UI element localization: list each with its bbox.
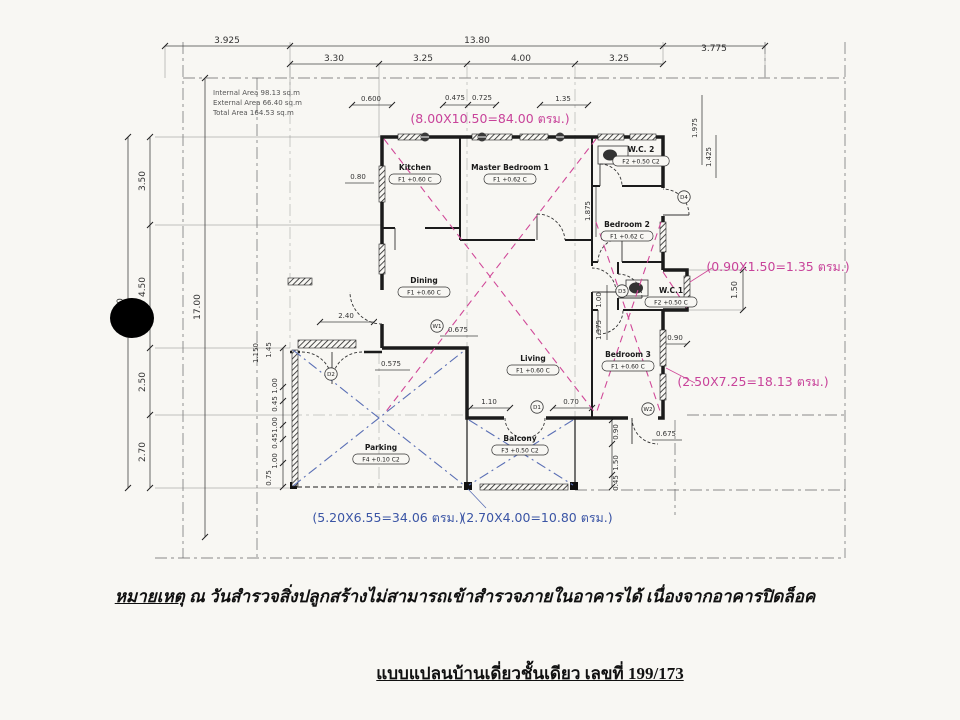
dimension-label: 1.425 [705, 147, 713, 167]
room-level-tag: F2 +0.50 C [654, 300, 688, 307]
dimension-label: 1.00 [271, 417, 279, 433]
bubble-code: D1 [533, 405, 541, 411]
dimension-label: 1.875 [584, 201, 592, 221]
dimension-label: 2.40 [338, 312, 354, 320]
dimension-label: 0.600 [361, 95, 381, 103]
dimension-label: 1.975 [691, 118, 699, 138]
bubble-code: D3 [618, 289, 626, 295]
dimension-label: 3.775 [701, 44, 727, 54]
area-summary-table: Internal Area 98.13 sq.mExternal Area 66… [212, 89, 302, 117]
dimension-label: 0.80 [350, 173, 366, 181]
dimension-label: 1.375 [595, 320, 603, 340]
dimension-label: 1.150 [252, 343, 260, 363]
dimension-label: 4.50 [138, 277, 148, 297]
dimension-label: 13.80 [464, 36, 490, 46]
room-name: Master Bedroom 1 [471, 163, 549, 172]
room-name: W.C. 2 [628, 145, 655, 154]
room-level-tag: F1 +0.62 C [493, 177, 527, 184]
bathroom-fixtures [421, 133, 649, 297]
dimension-label: 1.00 [271, 453, 279, 469]
dimension-label: 0.45 [612, 475, 620, 491]
note-body: ณ วันสำรวจสิ่งปลูกสร้างไม่สามารถเข้าสำรว… [185, 587, 816, 606]
dimension-label: 1.50 [612, 455, 620, 471]
dimension-label: 3.30 [324, 54, 344, 64]
dimension-label: 3.25 [609, 54, 629, 64]
pink-area-annotation: (0.90X1.50=1.35 ตรม.) [706, 259, 849, 274]
blue-area-annotation: (5.20X6.55=34.06 ตรม.) [312, 510, 463, 525]
bubble-code: D4 [680, 195, 688, 201]
dimension-label: 0.90 [667, 334, 683, 342]
room-name: Dining [410, 276, 437, 285]
dimension-label: 1.00 [595, 292, 603, 308]
dimension-label: 3.50 [138, 171, 148, 191]
dimension-label: 2.50 [138, 372, 148, 392]
room-name: W.C.1 [659, 286, 683, 295]
dimension-label: 0.45 [271, 396, 279, 412]
dimension-label: 0.90 [612, 424, 620, 440]
room-level-tag: F4 +0.10 C2 [362, 457, 400, 464]
room-name: Balcony [503, 434, 536, 443]
dimension-label: 0.725 [472, 94, 492, 102]
dimension-labels: 3.92513.803.7753.303.254.003.253.504.502… [116, 36, 739, 491]
pink-area-annotation: (2.50X7.25=18.13 ตรม.) [677, 374, 828, 389]
dimension-label: 3.925 [214, 36, 240, 46]
area-table-line: Internal Area 98.13 sq.m [213, 89, 300, 97]
dimension-label: 0.75 [265, 470, 273, 486]
dimension-label: 1.10 [481, 398, 497, 406]
dimension-label: 1.50 [730, 281, 739, 299]
room-name: Living [520, 354, 546, 363]
dimension-label: 0.575 [381, 360, 401, 368]
room-level-tag: F1 +0.60 C [516, 368, 550, 375]
dimension-label: 2.70 [138, 442, 148, 462]
dimension-label: 0.675 [656, 430, 676, 438]
note-heading: หมายเหตุ [115, 587, 185, 606]
floor-plan-drawing: D1D2D3D4W1W2 3.92513.803.7753.303.254.00… [0, 0, 960, 575]
hole-punch-mark [110, 298, 154, 338]
dimension-label: 1.35 [555, 95, 571, 103]
room-level-tag: F1 +0.60 C [611, 364, 645, 371]
bubble-code: W1 [433, 324, 442, 330]
dimension-label: 1.45 [265, 342, 273, 358]
room-name: Parking [365, 443, 397, 452]
pink-area-annotation: (8.00X10.50=84.00 ตรม.) [410, 111, 569, 126]
dimension-label: 0.475 [445, 94, 465, 102]
survey-note: หมายเหตุ ณ วันสำรวจสิ่งปลูกสร้างไม่สามาร… [0, 583, 930, 610]
bubble-code: D2 [327, 372, 335, 378]
room-level-tag: F1 +0.62 C [610, 234, 644, 241]
dimension-label: 0.675 [448, 326, 468, 334]
bubble-code: W2 [644, 407, 653, 413]
room-level-tag: F3 +0.50 C2 [501, 448, 539, 455]
dimension-label: 4.00 [511, 54, 531, 64]
dimension-label: 17.00 [193, 294, 203, 320]
room-level-tag: F1 +0.60 C [407, 290, 441, 297]
dimension-label: 1.00 [271, 378, 279, 394]
room-name: Bedroom 3 [605, 350, 651, 359]
room-name: Kitchen [399, 163, 431, 172]
dimension-label: 0.45 [271, 433, 279, 449]
dimension-label: 3.25 [413, 54, 433, 64]
dimension-label: 0.70 [563, 398, 579, 406]
room-level-tag: F1 +0.60 C [398, 177, 432, 184]
room-name: Bedroom 2 [604, 220, 650, 229]
room-level-tag: F2 +0.50 C2 [622, 159, 660, 166]
area-table-line: External Area 66.40 sq.m [213, 99, 302, 107]
blue-area-annotation: (2.70X4.00=10.80 ตรม.) [461, 510, 612, 525]
plan-title: แบบแปลนบ้านเดี่ยวชั้นเดียว เลขที่ 199/17… [100, 660, 960, 687]
area-table-line: Total Area 164.53 sq.m [212, 109, 294, 117]
